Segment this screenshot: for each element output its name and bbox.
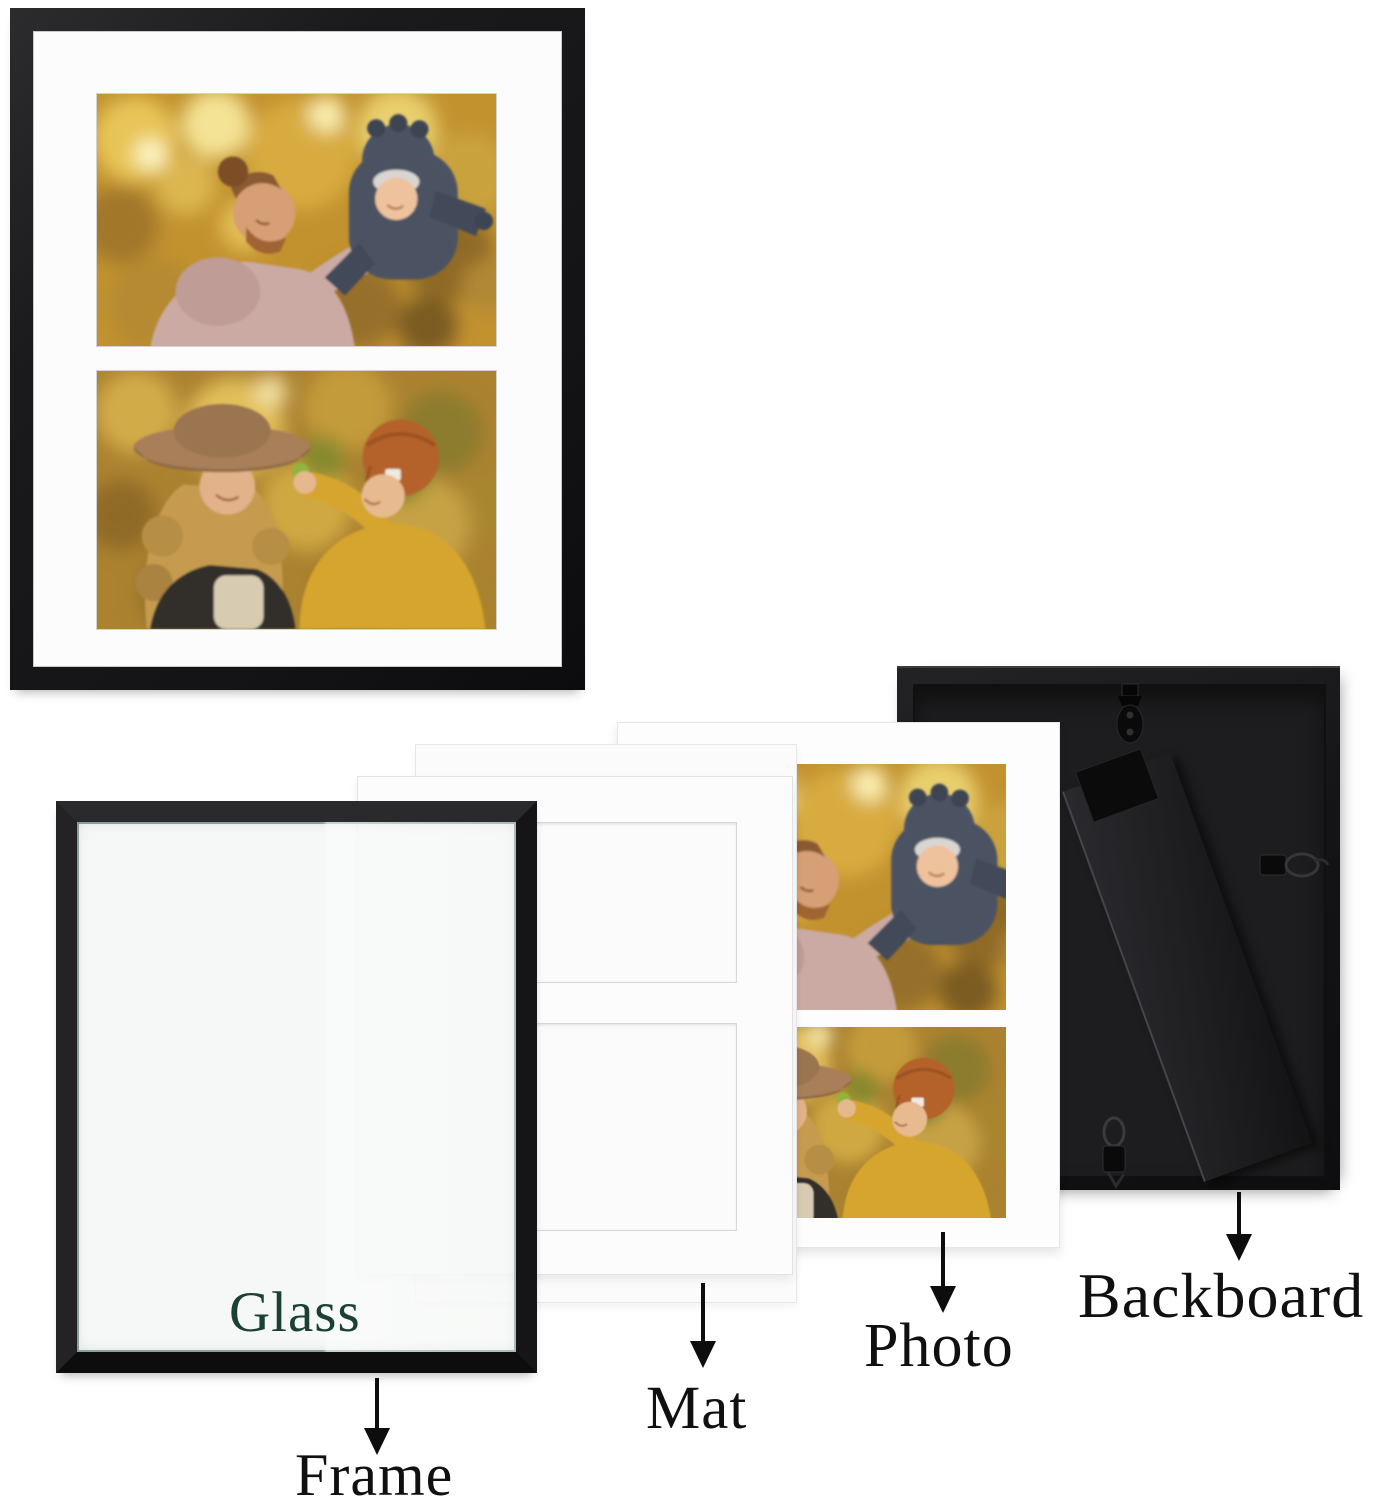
glass-label: Glass bbox=[229, 1280, 361, 1345]
sawtooth-hanger-icon bbox=[1108, 682, 1152, 746]
arrow-shaft bbox=[1237, 1192, 1241, 1234]
d-ring-hanger-icon bbox=[1258, 847, 1330, 883]
photo-2-mom-and-kid bbox=[97, 371, 496, 629]
mat-label: Mat bbox=[646, 1377, 747, 1441]
mat-arrow bbox=[690, 1283, 716, 1368]
assembled-frame bbox=[10, 8, 585, 690]
photo-1-dad-and-baby bbox=[97, 94, 496, 346]
product-diagram-canvas: Glass Frame Mat Photo Backboard bbox=[0, 0, 1390, 1500]
backboard-label: Backboard bbox=[1078, 1262, 1364, 1329]
assembled-frame-mat bbox=[33, 31, 562, 667]
arrow-down-icon bbox=[1226, 1234, 1252, 1261]
mat-strip bbox=[737, 822, 793, 1231]
arrow-shaft bbox=[941, 1232, 945, 1286]
arrow-down-icon bbox=[930, 1286, 956, 1313]
photo-label: Photo bbox=[864, 1314, 1014, 1379]
arrow-shaft bbox=[375, 1378, 379, 1428]
mat-strip bbox=[530, 983, 737, 1023]
glass-pane: Glass bbox=[77, 822, 516, 1352]
mat-window-1 bbox=[530, 822, 737, 983]
photo-arrow bbox=[930, 1232, 956, 1313]
backboard-arrow bbox=[1226, 1192, 1252, 1261]
d-ring-hanger-icon bbox=[1092, 1114, 1136, 1190]
arrow-shaft bbox=[701, 1283, 705, 1341]
glass-frame-layer: Glass bbox=[56, 801, 537, 1373]
assembled-photo-window-1 bbox=[96, 93, 497, 347]
frame-label: Frame bbox=[295, 1444, 453, 1500]
mat-window-2 bbox=[530, 1023, 737, 1231]
arrow-down-icon bbox=[690, 1341, 716, 1368]
assembled-photo-window-2 bbox=[96, 370, 497, 630]
